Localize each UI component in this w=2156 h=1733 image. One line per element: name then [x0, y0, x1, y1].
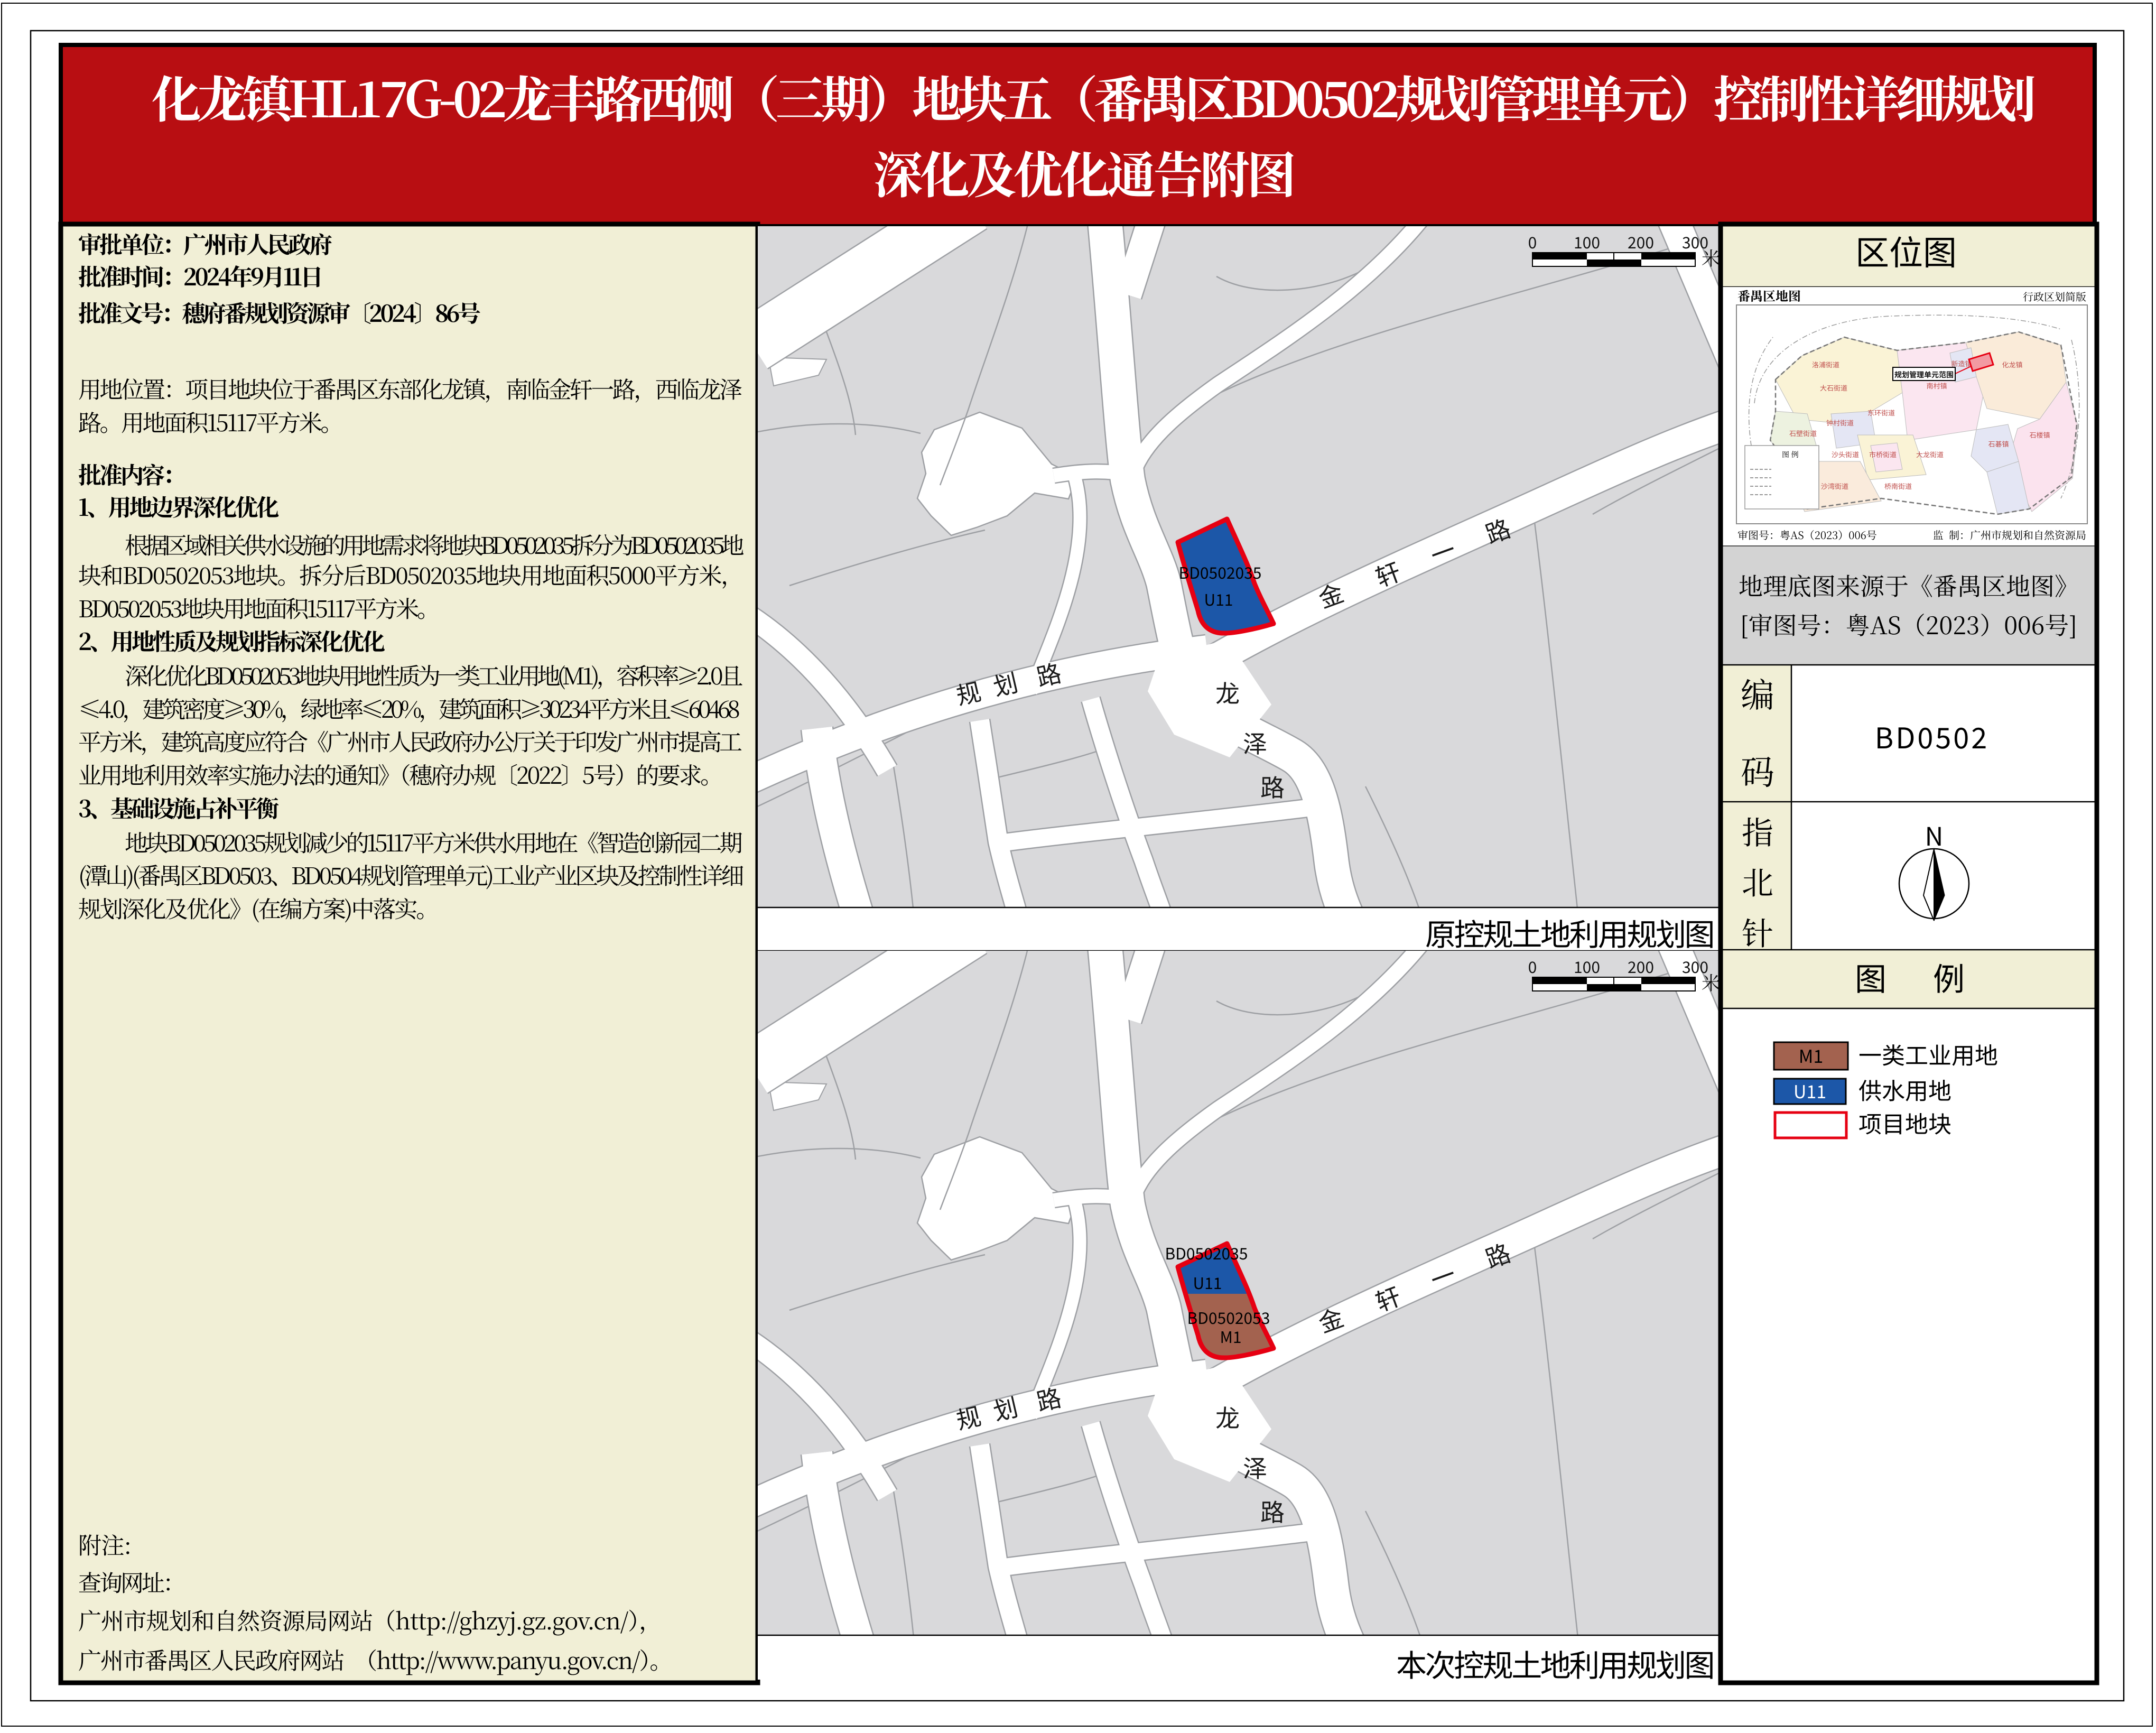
svg-text:编: 编: [1741, 669, 1774, 717]
svg-text:码: 码: [1741, 746, 1774, 794]
svg-text:U11: U11: [1793, 1078, 1826, 1104]
svg-text:业用地利用效率实施办法的通知》（穗府办规〔2022〕5号）的: 业用地利用效率实施办法的通知》（穗府办规〔2022〕5号）的要求。: [78, 757, 722, 791]
svg-text:深化及优化通告附图: 深化及优化通告附图: [873, 136, 1294, 207]
svg-text:平方米，建筑高度应符合《广州市人民政府办公厅关于印发广州市提: 平方米，建筑高度应符合《广州市人民政府办公厅关于印发广州市提高工: [78, 724, 742, 757]
svg-text:钟村街道: 钟村街道: [1826, 418, 1854, 428]
svg-text:化龙镇: 化龙镇: [2002, 359, 2022, 369]
svg-text:BD0502035: BD0502035: [1165, 1241, 1248, 1264]
svg-text:规划深化及优化》(在编方案)中落实。: 规划深化及优化》(在编方案)中落实。: [78, 891, 438, 924]
svg-text:块和BD0502053地块。拆分后BD0502035地块用地: 块和BD0502053地块。拆分后BD0502035地块用地面积5000平方米，: [78, 557, 743, 591]
svg-text:3、基础设施占补平衡: 3、基础设施占补平衡: [78, 790, 279, 824]
svg-text:规划管理单元范围: 规划管理单元范围: [1894, 369, 1954, 380]
svg-text:审图号：粤AS（2023）006号: 审图号：粤AS（2023）006号: [1737, 527, 1877, 542]
svg-text:图 例: 图 例: [1782, 449, 1799, 460]
svg-text:番禺区地图: 番禺区地图: [1737, 286, 1801, 304]
svg-text:根据区域相关供水设施的用地需求将地块BD0502035拆分为: 根据区域相关供水设施的用地需求将地块BD0502035拆分为BD0502035地: [125, 527, 744, 561]
svg-text:广州市规划和自然资源局网站（http://ghzyj.gz.: 广州市规划和自然资源局网站（http://ghzyj.gz.gov.cn/），: [78, 1602, 662, 1636]
svg-text:东环街道: 东环街道: [1867, 407, 1895, 418]
svg-text:≤4.0，建筑密度≥30%，绿地率≤20%，建筑面积≥302: ≤4.0，建筑密度≥30%，绿地率≤20%，建筑面积≥30234平方米且≤604…: [78, 691, 739, 725]
svg-text:BD0502: BD0502: [1875, 715, 1990, 757]
svg-text:大石街道: 大石街道: [1820, 383, 1847, 393]
svg-text:路。用地面积15117平方米。: 路。用地面积15117平方米。: [78, 404, 342, 438]
svg-text:BD0502035: BD0502035: [1179, 560, 1262, 583]
svg-text:指: 指: [1742, 808, 1773, 854]
svg-text:例: 例: [1933, 954, 1965, 1000]
svg-text:针: 针: [1742, 909, 1773, 954]
svg-text:图: 图: [1855, 954, 1886, 1000]
svg-text:[审图号：粤AS（2023）006号]: [审图号：粤AS（2023）006号]: [1740, 607, 2077, 642]
svg-text:北: 北: [1742, 858, 1773, 904]
svg-text:批准时间：2024年9月11日: 批准时间：2024年9月11日: [78, 258, 321, 292]
svg-text:石碁镇: 石碁镇: [1988, 439, 2009, 449]
svg-text:用地位置：项目地块位于番禺区东部化龙镇，南临金轩一路，西临龙: 用地位置：项目地块位于番禺区东部化龙镇，南临金轩一路，西临龙泽: [78, 371, 742, 405]
svg-text:大龙街道: 大龙街道: [1916, 449, 1944, 459]
svg-text:地块BD0502035规划减少的15117平方米供水用地在《: 地块BD0502035规划减少的15117平方米供水用地在《智造创新园二期: [125, 824, 742, 858]
svg-text:批准文号：穗府番规划资源审〔2024〕86号: 批准文号：穗府番规划资源审〔2024〕86号: [78, 295, 480, 329]
svg-text:一类工业用地: 一类工业用地: [1858, 1037, 1998, 1071]
svg-text:BD0502053地块用地面积15117平方米。: BD0502053地块用地面积15117平方米。: [78, 590, 438, 624]
svg-text:化龙镇HL17G-02龙丰路西侧（三期）地块五（番禺区BD0: 化龙镇HL17G-02龙丰路西侧（三期）地块五（番禺区BD0502规划管理单元）…: [152, 60, 2035, 132]
svg-text:1、用地边界深化优化: 1、用地边界深化优化: [78, 489, 279, 523]
svg-text:沙湾街道: 沙湾街道: [1821, 481, 1848, 491]
svg-text:批准内容：: 批准内容：: [78, 457, 184, 490]
svg-text:深化优化BD0502053地块用地性质为一类工业用地(M1): 深化优化BD0502053地块用地性质为一类工业用地(M1)，容积率≥2.0且: [125, 657, 742, 691]
svg-text:本次控规土地利用规划图: 本次控规土地利用规划图: [1396, 1641, 1713, 1685]
svg-text:N: N: [1925, 816, 1944, 853]
svg-text:审批单位：广州市人民政府: 审批单位：广州市人民政府: [78, 226, 332, 260]
svg-text:2、用地性质及规划指标深化优化: 2、用地性质及规划指标深化优化: [78, 623, 385, 657]
svg-text:地理底图来源于《番禺区地图》: 地理底图来源于《番禺区地图》: [1739, 568, 2079, 603]
svg-text:市桥街道: 市桥街道: [1869, 449, 1897, 459]
svg-text:供水用地: 供水用地: [1858, 1072, 1951, 1106]
svg-text:(潭山)(番禺区BD0503、BD0504规划管理单元)工业: (潭山)(番禺区BD0503、BD0504规划管理单元)工业产业区块及控制性详细: [78, 857, 743, 891]
svg-text:M1: M1: [1799, 1042, 1823, 1068]
svg-text:石楼镇: 石楼镇: [2029, 430, 2050, 440]
svg-text:项目地块: 项目地块: [1858, 1106, 1951, 1139]
svg-text:附注:: 附注:: [78, 1527, 131, 1561]
svg-text:U11: U11: [1193, 1271, 1222, 1294]
svg-text:查询网址：: 查询网址：: [78, 1564, 184, 1598]
svg-text:监 制：广州市规划和自然资源局: 监 制：广州市规划和自然资源局: [1933, 527, 2086, 542]
svg-text:沙头街道: 沙头街道: [1832, 449, 1859, 459]
svg-text:U11: U11: [1204, 587, 1233, 610]
svg-text:南村镇: 南村镇: [1926, 381, 1947, 391]
svg-text:广州市番禺区人民政府网站 （http://www.panyu: 广州市番禺区人民政府网站 （http://www.panyu.gov.cn/）。: [78, 1642, 672, 1676]
svg-text:区位图: 区位图: [1855, 226, 1957, 275]
svg-text:洛浦街道: 洛浦街道: [1812, 359, 1839, 369]
svg-text:M1: M1: [1220, 1324, 1241, 1348]
svg-text:原控规土地利用规划图: 原控规土地利用规划图: [1425, 910, 1713, 954]
svg-text:行政区划简版: 行政区划简版: [2023, 289, 2086, 304]
svg-text:桥南街道: 桥南街道: [1884, 481, 1912, 491]
svg-text:石壁街道: 石壁街道: [1789, 428, 1817, 438]
